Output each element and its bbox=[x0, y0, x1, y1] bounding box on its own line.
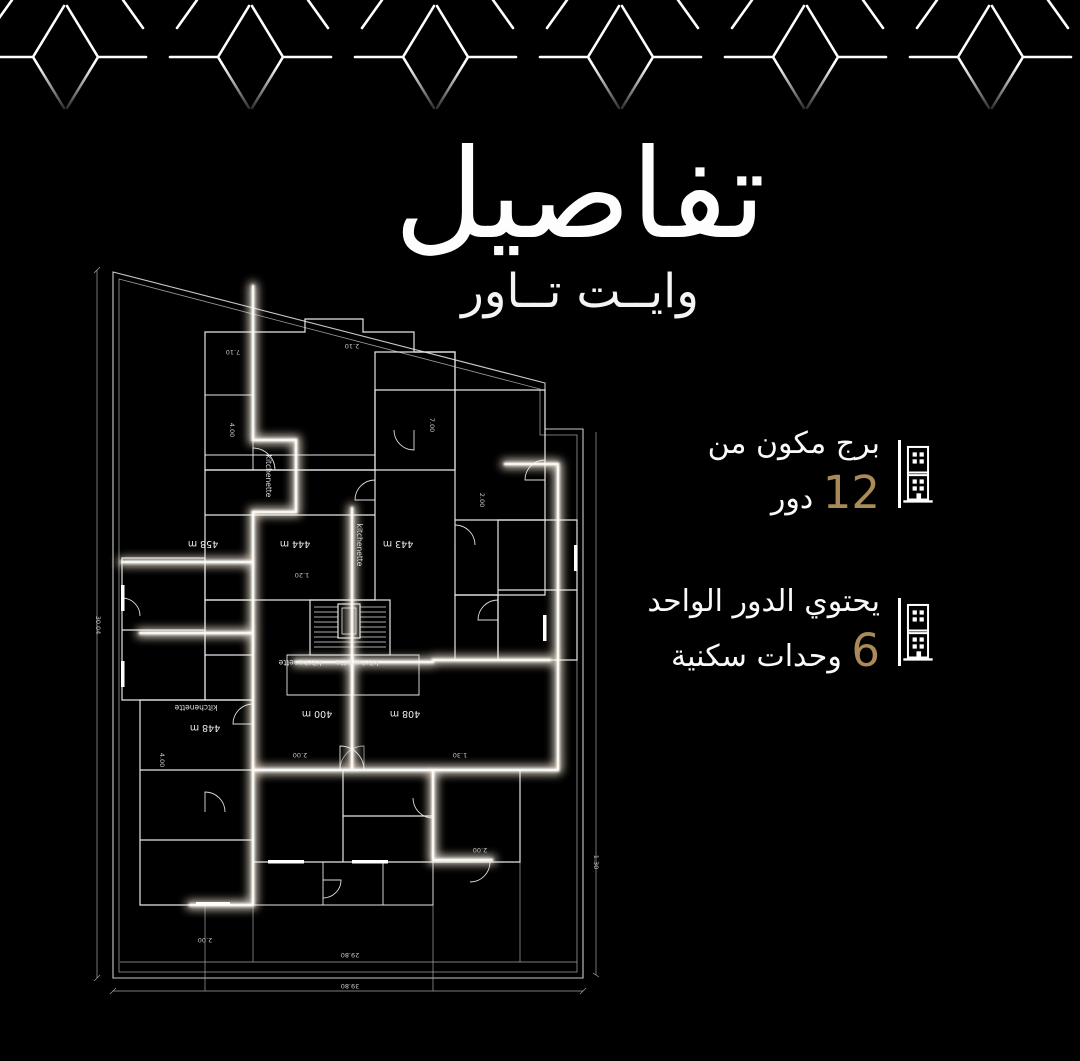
info-card-floors-text: برج مكون من 12 دور bbox=[708, 426, 880, 521]
info-card-floors: برج مكون من 12 دور bbox=[692, 426, 935, 521]
room-label: 448 m bbox=[190, 722, 220, 733]
svg-text:39.80: 39.80 bbox=[341, 982, 360, 990]
svg-text:1.30: 1.30 bbox=[453, 751, 467, 759]
svg-text:2.10: 2.10 bbox=[345, 342, 359, 350]
svg-text:4.00: 4.00 bbox=[228, 423, 236, 437]
room-label: 400 m bbox=[302, 708, 332, 719]
info-card-units-text: يحتوي الدور الواحد 6 وحدات سكنية bbox=[647, 584, 880, 679]
floors-unit-label: دور bbox=[771, 481, 813, 516]
kitchen-label: kitchenette bbox=[264, 455, 273, 498]
svg-text:7.00: 7.00 bbox=[428, 418, 436, 432]
hex-branch-border-pattern bbox=[0, 0, 1080, 118]
svg-text:2.00: 2.00 bbox=[293, 751, 307, 759]
card-line2: 6 وحدات سكنية bbox=[647, 623, 880, 679]
kitchen-label: kitchenette bbox=[278, 658, 321, 667]
room-label: 443 m bbox=[383, 538, 413, 549]
floors-count-value: 12 bbox=[823, 466, 880, 519]
page-title: تفاصيل bbox=[230, 132, 930, 258]
svg-text:29.80: 29.80 bbox=[341, 951, 360, 959]
svg-text:2.00: 2.00 bbox=[473, 846, 487, 854]
svg-text:1.20: 1.20 bbox=[295, 571, 309, 579]
building-icon bbox=[901, 440, 935, 508]
room-label: 458 m bbox=[188, 538, 218, 549]
units-unit-label: وحدات سكنية bbox=[671, 639, 842, 674]
room-label: 408 m bbox=[390, 708, 420, 719]
kitchen-label: kitchenette bbox=[174, 703, 217, 712]
info-card-units: يحتوي الدور الواحد 6 وحدات سكنية bbox=[631, 584, 935, 679]
room-label: 444 m bbox=[280, 538, 310, 549]
svg-text:7.10: 7.10 bbox=[226, 348, 240, 356]
svg-text:4.00: 4.00 bbox=[158, 753, 166, 767]
svg-text:2.00: 2.00 bbox=[198, 936, 212, 944]
svg-text:2.00: 2.00 bbox=[478, 493, 486, 507]
svg-text:30.04: 30.04 bbox=[94, 616, 102, 635]
kitchen-label: kitchenette bbox=[335, 658, 378, 667]
pattern-tiles bbox=[0, 0, 1080, 108]
poster-background: تفاصيل وايــت تــاور bbox=[0, 0, 1080, 1061]
building-icon bbox=[901, 598, 935, 666]
units-count-value: 6 bbox=[851, 624, 880, 677]
card-line1: برج مكون من bbox=[708, 426, 880, 462]
card-line2: 12 دور bbox=[708, 465, 880, 521]
card-line1: يحتوي الدور الواحد bbox=[647, 584, 880, 620]
svg-text:1.30: 1.30 bbox=[592, 855, 600, 869]
kitchen-label: kitchenette bbox=[355, 524, 364, 567]
floor-plan: 458 m 444 m 443 m 448 m 400 m 408 m kitc… bbox=[85, 250, 615, 1016]
